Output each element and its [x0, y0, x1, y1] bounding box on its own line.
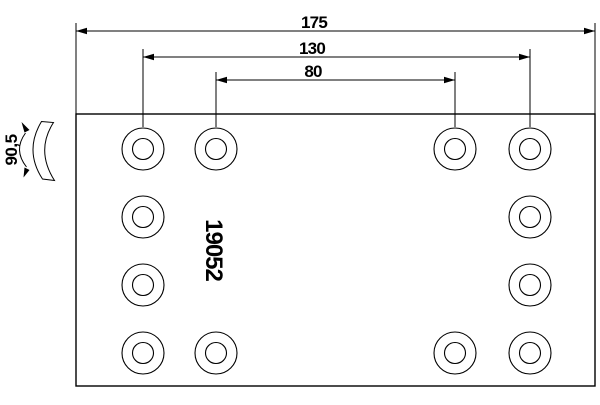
arrow-right-icon	[444, 77, 455, 83]
hole-outer	[195, 128, 237, 170]
hole-outer	[122, 264, 164, 306]
hole-inner	[133, 207, 154, 228]
dimension-label: 175	[301, 13, 327, 32]
dimension-hole-spacing-inner: 80	[216, 62, 455, 127]
arrow-left-icon	[76, 28, 87, 34]
arrow-left-icon	[143, 54, 154, 60]
hole-inner	[133, 343, 154, 364]
dimension-label: 130	[299, 39, 325, 58]
hole-inner	[445, 343, 466, 364]
arrow-right-icon	[584, 28, 595, 34]
drawing-canvas: 90,5 19052 175 130	[0, 0, 600, 400]
part-number-label: 19052	[200, 219, 227, 281]
hole-inner	[445, 139, 466, 160]
arc-arrow-down-icon	[24, 168, 30, 178]
arrow-right-icon	[519, 54, 530, 60]
rivet-holes	[122, 128, 551, 374]
brake-lining-drawing: 90,5 19052 175 130	[0, 0, 600, 400]
hole-inner	[206, 139, 227, 160]
hole-inner	[133, 139, 154, 160]
hole-outer	[434, 332, 476, 374]
hole-outer	[509, 128, 551, 170]
hole-inner	[520, 343, 541, 364]
hole-inner	[520, 139, 541, 160]
hole-outer	[122, 332, 164, 374]
arc-dimension-label: 90,5	[2, 134, 21, 165]
hole-outer	[509, 332, 551, 374]
hole-outer	[509, 264, 551, 306]
hole-outer	[434, 128, 476, 170]
hole-outer	[509, 196, 551, 238]
arrow-left-icon	[216, 77, 227, 83]
hole-outer	[122, 128, 164, 170]
hole-inner	[520, 207, 541, 228]
brake-lining-plate-outline	[76, 114, 595, 386]
dimension-label: 80	[304, 62, 322, 81]
hole-outer	[195, 332, 237, 374]
curved-band-shape	[33, 122, 55, 181]
hole-inner	[520, 275, 541, 296]
arc-arrow-up-icon	[22, 122, 30, 133]
curvature-symbol: 90,5	[2, 122, 55, 181]
hole-outer	[122, 196, 164, 238]
hole-inner	[133, 275, 154, 296]
hole-inner	[206, 343, 227, 364]
dimension-overall-length: 175	[76, 13, 595, 114]
